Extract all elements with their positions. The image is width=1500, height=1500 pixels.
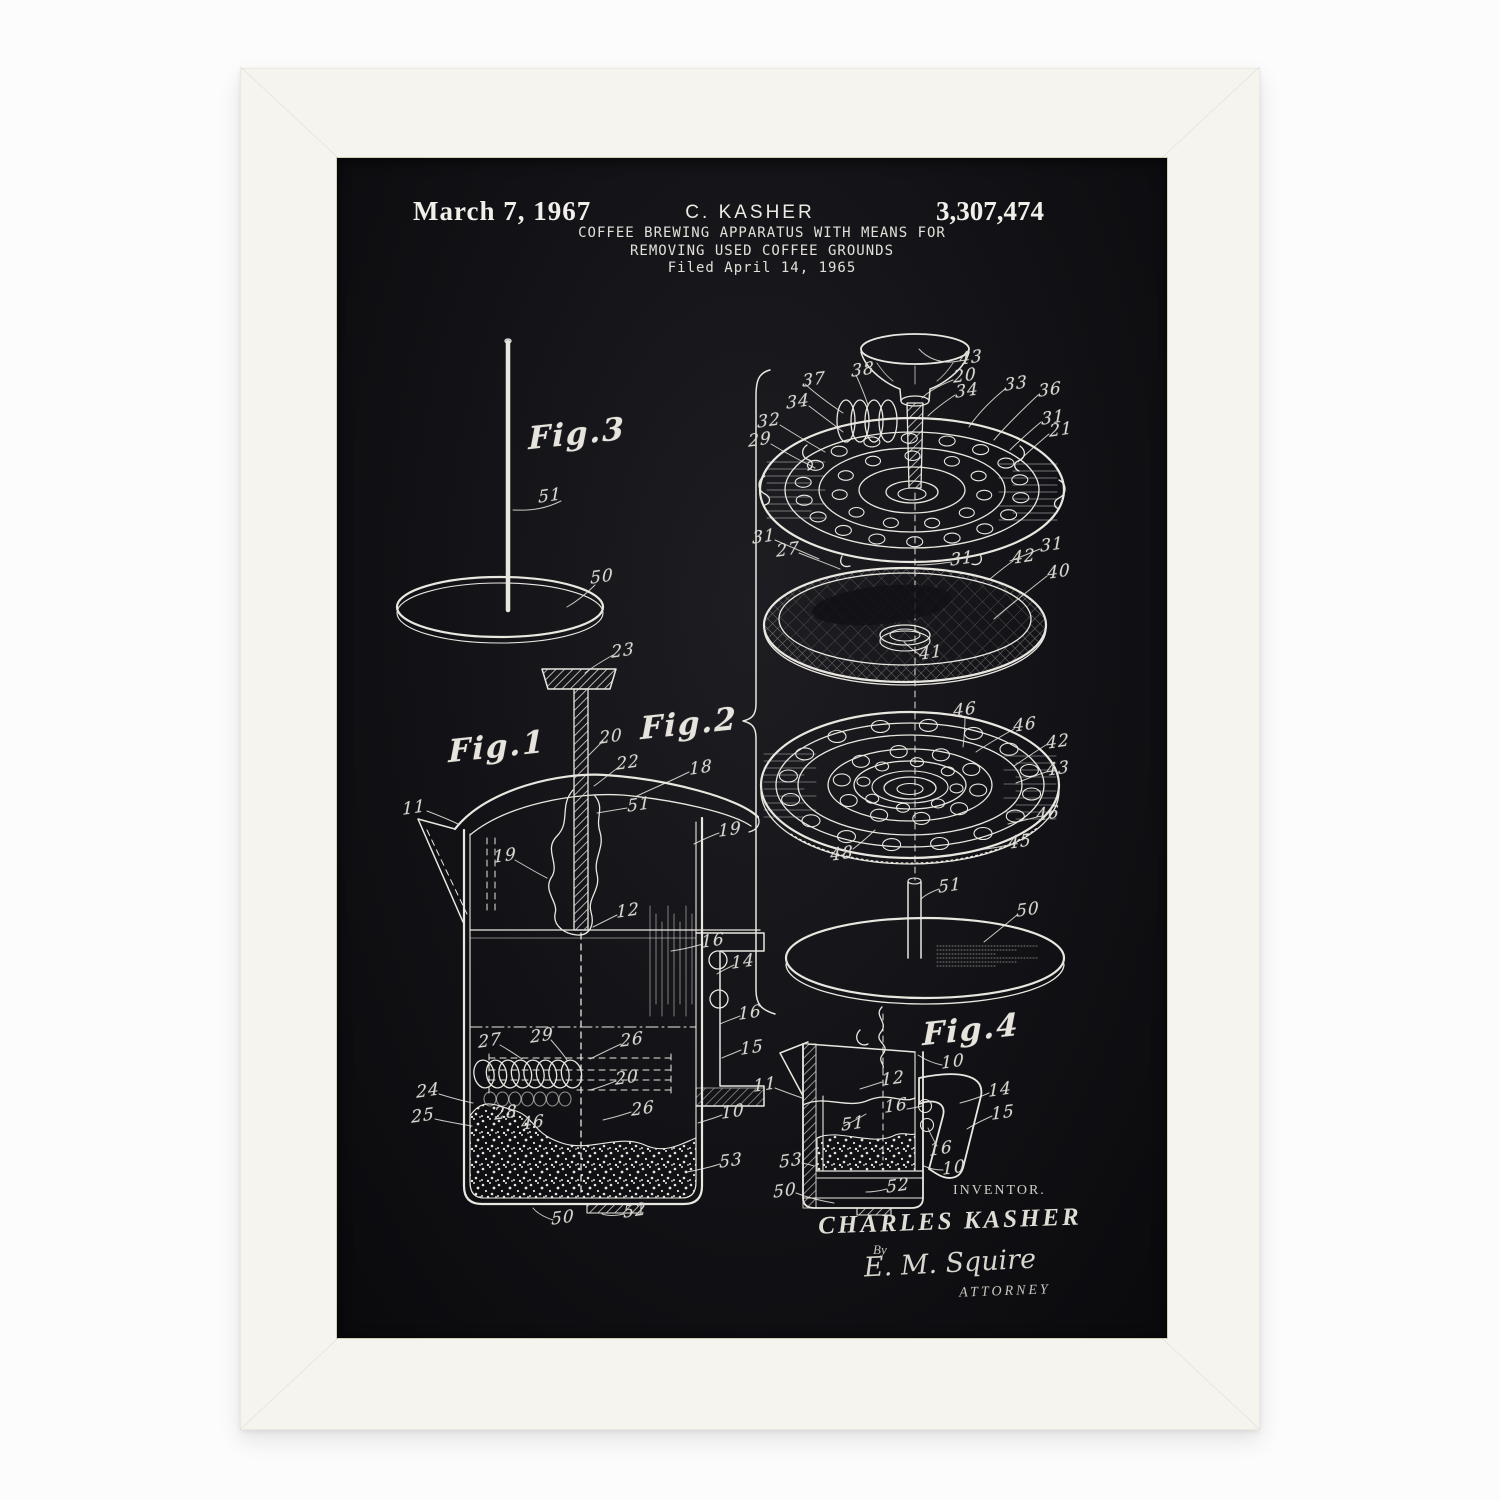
part-number-label: 23 <box>611 639 634 662</box>
part-number-label: 16 <box>929 1137 952 1160</box>
part-number-label: 22 <box>616 751 639 774</box>
part-number-label: 33 <box>1004 372 1027 395</box>
frame-miter-line <box>1161 66 1260 159</box>
part-number-label: 29 <box>748 428 771 451</box>
part-number-label: 36 <box>1038 378 1061 401</box>
part-number-label: 19 <box>718 818 741 841</box>
part-number-label: 19 <box>493 844 516 867</box>
part-number-labels-layer: 5150232022181151191912161416152729262026… <box>337 158 1167 1338</box>
part-number-label: 10 <box>941 1050 964 1073</box>
part-number-label: 21 <box>1049 418 1072 441</box>
part-number-label: 50 <box>551 1206 574 1229</box>
part-number-label: 20 <box>599 725 622 748</box>
part-number-label: 46 <box>1013 713 1036 736</box>
part-number-label: 46 <box>953 698 976 721</box>
patent-poster: March 7, 1967 C. KASHER 3,307,474 COFFEE… <box>337 158 1167 1338</box>
part-number-label: 26 <box>620 1028 643 1051</box>
part-number-label: 28 <box>494 1101 517 1124</box>
part-number-label: 14 <box>731 950 754 973</box>
product-photo-background: March 7, 1967 C. KASHER 3,307,474 COFFEE… <box>0 0 1500 1500</box>
part-number-label: 10 <box>721 1100 744 1123</box>
frame-miter-line <box>240 1337 339 1430</box>
part-number-label: 51 <box>627 793 650 816</box>
part-number-label: 12 <box>616 899 639 922</box>
part-number-label: 27 <box>776 538 799 561</box>
part-number-label: 18 <box>689 756 712 779</box>
part-number-label: 25 <box>411 1104 434 1127</box>
part-number-label: 10 <box>942 1156 965 1179</box>
part-number-label: 31 <box>950 547 973 570</box>
part-number-label: 50 <box>1016 898 1039 921</box>
part-number-label: 16 <box>884 1094 907 1117</box>
part-number-label: 31 <box>1040 533 1063 556</box>
part-number-label: 16 <box>701 929 724 952</box>
part-number-label: 50 <box>590 565 613 588</box>
part-number-label: 43 <box>1046 757 1069 780</box>
part-number-label: 16 <box>738 1001 761 1024</box>
part-number-label: 29 <box>530 1024 553 1047</box>
part-number-label: 40 <box>1047 560 1070 583</box>
part-number-label: 31 <box>752 525 775 548</box>
part-number-label: 11 <box>753 1073 776 1096</box>
part-number-label: 46 <box>521 1111 544 1134</box>
part-number-label: 48 <box>830 842 853 865</box>
part-number-label: 37 <box>802 368 825 391</box>
part-number-label: 11 <box>402 796 425 819</box>
part-number-label: 51 <box>538 484 561 507</box>
part-number-label: 14 <box>988 1078 1011 1101</box>
poster-frame: March 7, 1967 C. KASHER 3,307,474 COFFEE… <box>240 68 1260 1430</box>
inventor-caption: INVENTOR. <box>953 1183 1046 1199</box>
part-number-label: 34 <box>786 390 809 413</box>
part-number-label: 51 <box>938 874 961 897</box>
frame-miter-line <box>1161 1337 1260 1430</box>
part-number-label: 45 <box>1008 830 1031 853</box>
part-number-label: 51 <box>841 1112 864 1135</box>
part-number-label: 15 <box>740 1036 763 1059</box>
part-number-label: 34 <box>955 379 978 402</box>
part-number-label: 38 <box>851 358 874 381</box>
part-number-label: 46 <box>1036 802 1059 825</box>
attorney-caption: ATTORNEY <box>959 1282 1051 1301</box>
part-number-label: 42 <box>1012 545 1035 568</box>
part-number-label: 42 <box>1046 730 1069 753</box>
part-number-label: 26 <box>631 1097 654 1120</box>
frame-miter-line <box>240 66 339 159</box>
part-number-label: 53 <box>779 1149 802 1172</box>
part-number-label: 12 <box>881 1067 904 1090</box>
part-number-label: 15 <box>991 1101 1014 1124</box>
part-number-label: 50 <box>773 1179 796 1202</box>
part-number-label: 52 <box>886 1174 909 1197</box>
part-number-label: 24 <box>416 1079 439 1102</box>
part-number-label: 27 <box>478 1029 501 1052</box>
part-number-label: 52 <box>623 1199 646 1222</box>
part-number-label: 41 <box>919 641 942 664</box>
part-number-label: 20 <box>615 1066 638 1089</box>
part-number-label: 53 <box>719 1149 742 1172</box>
